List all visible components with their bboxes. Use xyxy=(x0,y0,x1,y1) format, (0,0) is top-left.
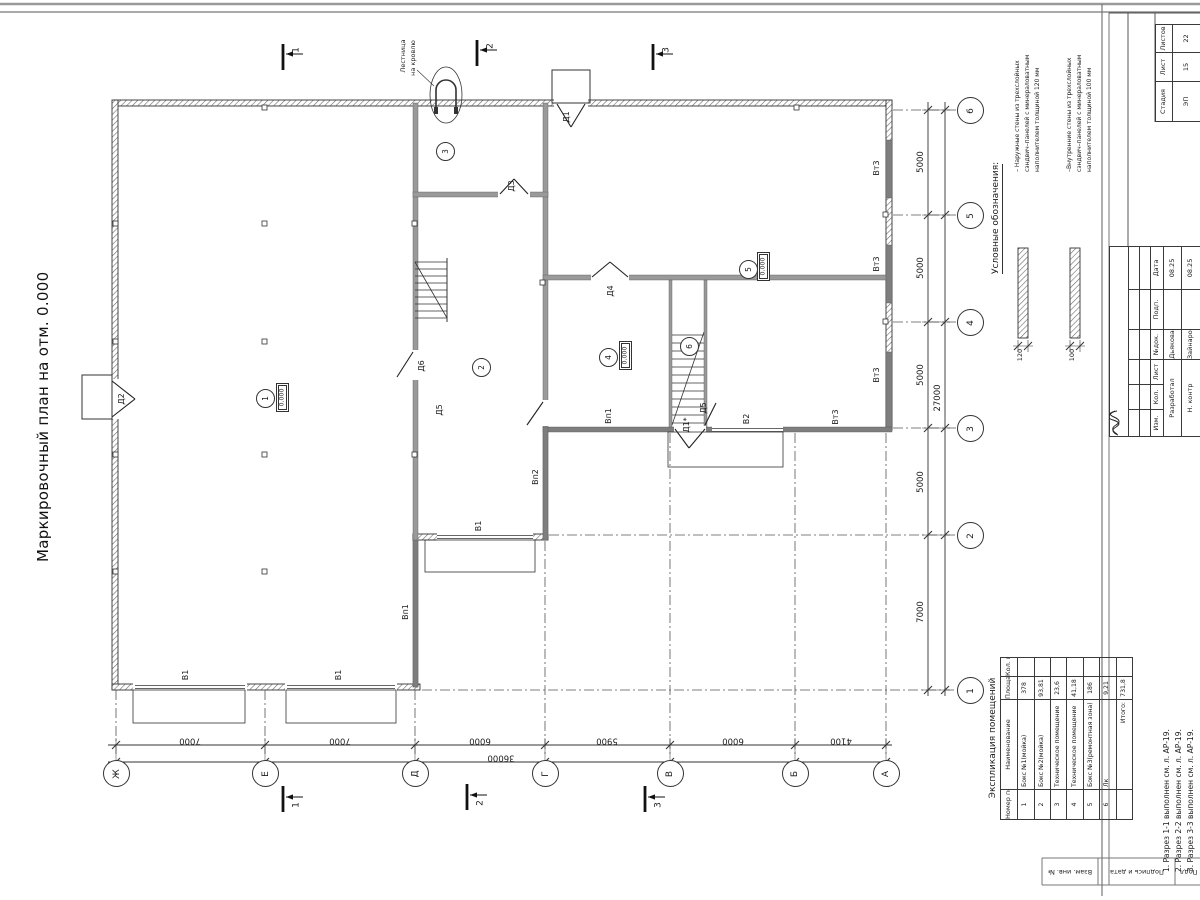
axis-label: 5 xyxy=(965,213,975,219)
label-vent-vt3-c: Вт3 xyxy=(873,367,881,382)
explication-cell: 5 xyxy=(1083,790,1099,820)
label-legend-dim-100: 100 xyxy=(1069,349,1076,361)
elevation-mark-inner: 0.000 xyxy=(278,385,287,410)
label-ladder-line2: на кровлю xyxy=(410,40,417,76)
label-section-1-top: 1 xyxy=(293,47,302,53)
axis-bubble-Ж: Ж xyxy=(103,760,130,787)
stamp-col-doc: №док. xyxy=(1151,330,1164,360)
explication-cell: 41,18 xyxy=(1067,677,1083,700)
legend-line: –Внутренние стены из трехслойных xyxy=(1065,70,1075,172)
axis-label: 4 xyxy=(965,320,975,326)
dimension-ticks xyxy=(112,106,950,768)
note-line: 3. Разрез 3-3 выполнен см. л. АР-19. xyxy=(1185,690,1197,872)
axis-label: Б xyxy=(791,770,801,776)
legend-line: сэндвич–панелей с минераловатным xyxy=(1023,70,1033,172)
explication-cell: 2 xyxy=(1034,790,1050,820)
label-gate-v1-c: В1 xyxy=(475,521,483,532)
elevation-mark: 0.000 xyxy=(757,252,770,281)
stamp-empty-wide xyxy=(1110,246,1129,436)
sheet-number-value: 15 xyxy=(1173,53,1200,82)
explication-cell xyxy=(1083,658,1099,677)
explication-cell: Техническое помещение xyxy=(1050,700,1066,790)
legend-heading: Условные обозначения: xyxy=(991,164,1003,274)
axis-label: Д xyxy=(411,770,421,777)
label-door-d3: Д3 xyxy=(508,180,516,191)
explication-cell: Лк xyxy=(1100,700,1116,790)
strip-cell-podl: Подл. xyxy=(1175,858,1200,885)
explication-total-count xyxy=(1116,658,1132,677)
label-section-1-bottom: 1 xyxy=(293,802,302,808)
explication-row: 1Бокс №1(мойка)378 xyxy=(1018,658,1034,820)
stamp-wrap: Изм. Кол. Лист №док. Подп. Дата Разработ… xyxy=(1109,246,1200,437)
dimension-value: 6000 xyxy=(469,736,491,745)
explication-cell xyxy=(1018,658,1034,677)
stadia-label: Стадия xyxy=(1156,82,1173,122)
axis-label: Е xyxy=(261,771,271,777)
sheet-count-value: 22 xyxy=(1173,25,1200,53)
axis-label: 1 xyxy=(965,688,975,694)
stairs xyxy=(415,258,704,425)
note-line: 1. Разрез 1-1 выполнен см. л. АР-19. xyxy=(1161,690,1173,872)
strip-label: Подпись и дата xyxy=(1110,868,1164,876)
label-door-d1: Д1 xyxy=(563,111,571,122)
axis-bubble-5: 5 xyxy=(957,202,984,229)
stamp-date-0: 08.25 xyxy=(1164,246,1182,289)
legend-item-exterior: – Наружные стены из трехслойных сэндвич–… xyxy=(1013,70,1043,172)
sheet-number-label: Лист xyxy=(1156,53,1173,82)
axis-bubble-Б: Б xyxy=(782,760,809,787)
stadia-block-wrap: Стадия Лист Листов ЭП 15 22 xyxy=(1155,24,1200,122)
label-vent-vp2: Вп2 xyxy=(532,469,540,485)
elevation-mark-inner: 0.000 xyxy=(621,343,630,368)
dimension-value: 5000 xyxy=(917,471,926,493)
stamp-role-1: Н. контр xyxy=(1182,360,1200,437)
dimension-total: 27000 xyxy=(934,384,943,411)
stamp-col-data: Дата xyxy=(1151,246,1164,289)
explication-cell: Техническое помещение xyxy=(1067,700,1083,790)
roof-ladder-icon xyxy=(417,67,462,123)
strip-label: Подл. xyxy=(1178,868,1198,876)
label-vent-vp1-a: Вп1 xyxy=(402,604,410,620)
explication-cell xyxy=(1050,658,1066,677)
explication-cell: 3 xyxy=(1050,790,1066,820)
axis-bubble-4: 4 xyxy=(957,309,984,336)
explication-table-wrap: Номер помещ. Наименование Площадь, м2 Ко… xyxy=(1000,657,1133,820)
label-section-3-bottom: 3 xyxy=(655,802,664,808)
room-number: 1 xyxy=(261,396,270,401)
stamp-date-1: 08.25 xyxy=(1182,246,1200,289)
explication-cell: Бокс №3(ремонтная зона) xyxy=(1083,700,1099,790)
strip-label: Взам. инв. № xyxy=(1048,868,1092,876)
stamp-col-kol: Кол. xyxy=(1151,385,1164,410)
section-marks xyxy=(283,40,673,812)
explication-cell: 93,81 xyxy=(1034,677,1050,700)
elevation-value: 0.000 xyxy=(760,257,767,275)
signature-scribble xyxy=(1182,290,1200,330)
axis-bubble-Д: Д xyxy=(402,760,429,787)
label-section-3-top: 3 xyxy=(663,47,672,53)
dimension-value: 5000 xyxy=(917,257,926,279)
axis-bubble-6: 6 xyxy=(957,97,984,124)
axis-bubble-В: В xyxy=(657,760,684,787)
axis-lines xyxy=(116,110,956,757)
explication-table: Номер помещ. Наименование Площадь, м2 Ко… xyxy=(1000,657,1133,820)
drawing-sheet: Маркировочный план на отм. 0.000 Условны… xyxy=(0,0,1200,900)
dimension-value: 6000 xyxy=(722,736,744,745)
dimension-value: 5000 xyxy=(917,364,926,386)
label-gate-v1-a: В1 xyxy=(182,670,190,681)
stamp-col-izm: Изм. xyxy=(1151,410,1164,437)
legend-line: сэндвич–панелей с минераловатным xyxy=(1075,70,1085,172)
legend-line: наполнителем толщиной 100 мм xyxy=(1085,70,1095,172)
axis-bubble-2: 2 xyxy=(957,522,984,549)
room-number: 2 xyxy=(477,365,486,370)
label-section-2-bottom: 2 xyxy=(477,800,486,806)
columns xyxy=(113,105,888,574)
label-vent-vt3-d: Вт3 xyxy=(832,409,840,424)
elevation-value: 0.000 xyxy=(279,388,286,406)
room-number-marker: 3 xyxy=(436,142,455,161)
stamp-col-list: Лист xyxy=(1151,360,1164,385)
exterior-walls xyxy=(112,100,892,690)
explication-row: 5Бокс №3(ремонтная зона)186 xyxy=(1083,658,1099,820)
elevation-mark-inner: 0.000 xyxy=(759,254,768,279)
strip-cell-vzam: Взам. инв. № xyxy=(1042,858,1098,885)
stamp-name-0: Дьякова xyxy=(1164,330,1182,360)
axis-label: 2 xyxy=(965,533,975,539)
label-door-d1-star: Д1* xyxy=(683,417,691,432)
axis-bubble-Е: Е xyxy=(252,760,279,787)
stadia-table: Стадия Лист Листов ЭП 15 22 xyxy=(1155,24,1200,122)
explication-cell: Бокс №1(мойка) xyxy=(1018,700,1034,790)
explication-cell: Бокс №2(мойка) xyxy=(1034,700,1050,790)
explication-cell: 9,21 xyxy=(1100,677,1116,700)
explication-col-count: Кол. пом. xyxy=(1001,658,1018,677)
label-section-2-top: 2 xyxy=(487,43,496,49)
label-ladder-line1: Лестница xyxy=(400,39,407,72)
stadia-value: ЭП xyxy=(1173,82,1200,122)
legend-item-interior: –Внутренние стены из трехслойных сэндвич… xyxy=(1065,70,1095,172)
explication-row: 2Бокс №2(мойка)93,81 xyxy=(1034,658,1050,820)
explication-total-label: Итого: xyxy=(1116,700,1132,790)
room-number-marker: 2 xyxy=(472,358,491,377)
elevation-mark: 0.000 xyxy=(619,341,632,370)
explication-cell: 378 xyxy=(1018,677,1034,700)
stamp-col-podp: Подп. xyxy=(1151,290,1164,330)
dimension-value: 5000 xyxy=(917,151,926,173)
signature-scribble xyxy=(1164,290,1182,330)
axis-bubble-1: 1 xyxy=(957,677,984,704)
explication-cell xyxy=(1100,658,1116,677)
explication-col-name: Наименование xyxy=(1001,700,1018,790)
label-door-d6: Д6 xyxy=(418,360,426,371)
landings-ramps xyxy=(82,70,783,723)
dimension-value: 7000 xyxy=(329,736,351,745)
dimension-value: 7000 xyxy=(179,736,201,745)
axis-bubble-А: А xyxy=(873,760,900,787)
label-gate-v2: В2 xyxy=(743,414,751,425)
explication-cell xyxy=(1067,658,1083,677)
dimension-value: 4100 xyxy=(830,736,852,745)
axis-bubble-3: 3 xyxy=(957,415,984,442)
page-title: Маркировочный план на отм. 0.000 xyxy=(34,282,52,562)
axis-label: Ж xyxy=(111,769,121,779)
explication-cell: 186 xyxy=(1083,677,1099,700)
room-number: 6 xyxy=(685,344,694,349)
explication-row: 4Техническое помещение41,18 xyxy=(1067,658,1083,820)
explication-heading: Экспликация помещений xyxy=(988,658,998,818)
stamp-role-0: Разработал xyxy=(1164,360,1182,437)
axis-label: Г xyxy=(541,771,551,777)
dimension-total: 36000 xyxy=(487,753,514,762)
explication-cell: 4 xyxy=(1067,790,1083,820)
axis-label: 3 xyxy=(965,426,975,432)
label-door-d5-b: Д5 xyxy=(700,402,708,413)
label-vent-vp1-b: Вп1 xyxy=(605,408,613,424)
label-door-d4: Д4 xyxy=(607,285,615,296)
notes-block: 1. Разрез 1-1 выполнен см. л. АР-19. 2. … xyxy=(1161,690,1197,872)
stamp-name-1: Зайнарова xyxy=(1182,330,1200,360)
explication-col-num: Номер помещ. xyxy=(1001,790,1018,820)
explication-total-empty xyxy=(1116,790,1132,820)
explication-cell xyxy=(1034,658,1050,677)
axis-bubble-Г: Г xyxy=(532,760,559,787)
label-door-d5-a: Д5 xyxy=(436,404,444,415)
label-door-d2: Д2 xyxy=(118,393,126,404)
strip-cell-podpis: Подпись и дата xyxy=(1098,858,1175,885)
legend-line: наполнителем толщиной 120 мм xyxy=(1033,70,1043,172)
label-vent-vt3-a: Вт3 xyxy=(873,160,881,175)
room-number: 5 xyxy=(744,267,753,272)
sheet-count-label: Листов xyxy=(1156,25,1173,53)
room-number: 3 xyxy=(441,149,450,154)
stamp-table: Изм. Кол. Лист №док. Подп. Дата Разработ… xyxy=(1109,246,1200,437)
note-line: 2. Разрез 2-2 выполнен см. л. АР-19. xyxy=(1173,690,1185,872)
axis-label: В xyxy=(666,770,676,776)
room-number: 4 xyxy=(604,355,613,360)
legend-line: – Наружные стены из трехслойных xyxy=(1013,70,1023,172)
label-legend-dim-120: 120 xyxy=(1017,349,1024,361)
axis-label: 6 xyxy=(965,108,975,114)
legend-wall-samples xyxy=(1013,248,1085,352)
explication-cell: 6 xyxy=(1100,790,1116,820)
elevation-mark: 0.000 xyxy=(276,383,289,412)
explication-cell: 1 xyxy=(1018,790,1034,820)
dimension-value: 5900 xyxy=(596,736,618,745)
axis-label: А xyxy=(881,770,891,776)
explication-row: 6Лк9,21 xyxy=(1100,658,1116,820)
explication-col-area: Площадь, м2 xyxy=(1001,677,1018,700)
room-number-marker: 4 xyxy=(599,348,618,367)
interior-walls xyxy=(413,103,892,687)
room-number-marker: 6 xyxy=(680,337,699,356)
gate-leaves xyxy=(135,429,783,689)
explication-cell: 23,6 xyxy=(1050,677,1066,700)
elevation-value: 0.000 xyxy=(622,346,629,364)
room-number-marker: 1 xyxy=(256,389,275,408)
room-number-marker: 5 xyxy=(739,260,758,279)
explication-total-area: 731,8 xyxy=(1116,677,1132,700)
dimension-value: 7000 xyxy=(917,601,926,623)
label-gate-v1-b: В1 xyxy=(335,670,343,681)
label-vent-vt3-b: Вт3 xyxy=(873,256,881,271)
explication-row: 3Техническое помещение23,6 xyxy=(1050,658,1066,820)
